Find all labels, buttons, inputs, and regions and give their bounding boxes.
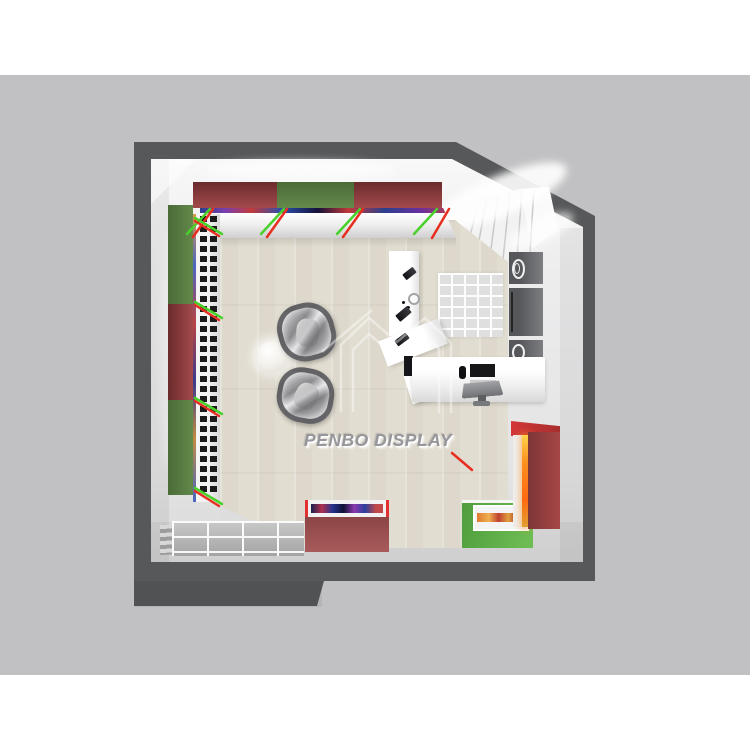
seat-cushion-fold bbox=[296, 318, 320, 347]
cabinet-floor-shadow bbox=[200, 238, 456, 247]
top-cabinet-green bbox=[277, 182, 354, 208]
watch-ring-display bbox=[408, 293, 420, 305]
top-cabinet-red-1 bbox=[193, 182, 277, 208]
office-chair-base bbox=[473, 401, 490, 406]
left-cabinet-red bbox=[168, 304, 193, 400]
top-display-graphics-strip bbox=[200, 208, 456, 213]
red-display-case bbox=[305, 500, 389, 552]
red-lightbox-cabinet bbox=[507, 421, 560, 521]
left-cabinet-green-2 bbox=[168, 400, 193, 495]
left-display-graphics-strip bbox=[193, 214, 196, 502]
render-canvas: PENBO DISPLAY bbox=[0, 0, 750, 750]
watch-display-column bbox=[210, 216, 217, 495]
top-cabinet-red-2 bbox=[354, 182, 442, 208]
storage-box-1 bbox=[509, 252, 543, 284]
box-seam bbox=[511, 292, 513, 332]
small-product-dot bbox=[402, 301, 405, 304]
case-rim bbox=[305, 500, 389, 517]
top-cabinet-display-front bbox=[200, 208, 456, 238]
lightbox-body bbox=[528, 432, 560, 529]
box-oval-detail bbox=[514, 263, 520, 274]
tiled-platform bbox=[172, 521, 304, 556]
case-products bbox=[311, 504, 383, 513]
watermark-text: PENBO DISPLAY bbox=[304, 430, 474, 451]
left-cabinet-green-1 bbox=[168, 205, 193, 304]
seat-cushion-fold bbox=[290, 379, 322, 413]
desk-accessory bbox=[459, 366, 466, 379]
cube-shelf bbox=[438, 273, 503, 337]
storage-box-2 bbox=[509, 288, 543, 336]
left-cabinet-display-front bbox=[193, 214, 220, 502]
watch-display-column bbox=[200, 216, 207, 495]
computer-monitor bbox=[470, 364, 495, 379]
case-front bbox=[305, 517, 389, 552]
